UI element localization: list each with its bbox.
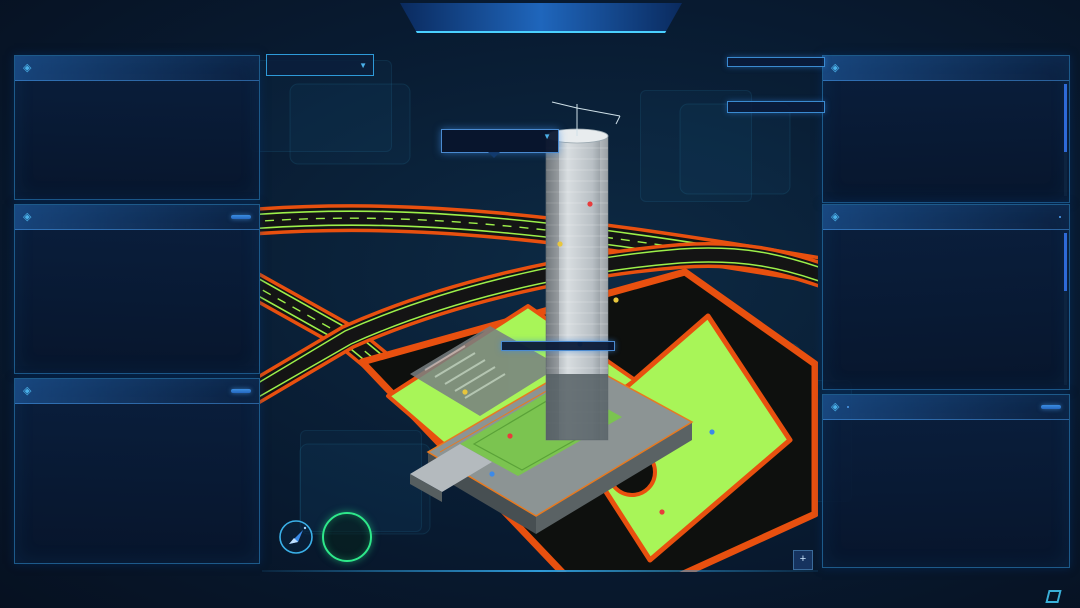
- diamond-icon: ◈: [831, 212, 839, 223]
- site-3d-map[interactable]: [260, 44, 818, 572]
- trades-panel: ◈: [822, 55, 1070, 203]
- page-title: [400, 3, 682, 33]
- attendance-chart-panel: ◈: [14, 204, 260, 374]
- detail-button[interactable]: [1041, 405, 1061, 409]
- panel-header: ◈: [15, 379, 259, 404]
- diamond-icon: ◈: [23, 386, 31, 397]
- detail-button[interactable]: [231, 389, 251, 393]
- panel-header: ◈: [15, 205, 259, 230]
- entry-exit-records-panel: ◈: [14, 55, 260, 200]
- detail-button[interactable]: [231, 215, 251, 219]
- panel-header: ◈: [15, 56, 259, 81]
- floor-tooltip: [501, 341, 615, 351]
- tower-info-box: [727, 101, 825, 113]
- logo-icon: [1045, 590, 1061, 603]
- dashboard: ◈ ◈ ◈ ▼ ▼: [0, 0, 1080, 608]
- brand-logo: [1047, 590, 1064, 603]
- today-attendance-ring: [322, 512, 372, 562]
- building-popup: ▼: [441, 129, 559, 153]
- panel-header: ◈: [823, 395, 1069, 420]
- work-days-distribution-panel: ◈: [14, 378, 260, 564]
- map-edge-glow: [262, 570, 818, 572]
- footer: [1037, 590, 1064, 603]
- scrollbar[interactable]: [1064, 84, 1067, 196]
- squad-tabs: [847, 406, 849, 408]
- panel-header: ◈: [823, 205, 1069, 230]
- fullscreen-icon[interactable]: +: [793, 550, 813, 570]
- diamond-icon: ◈: [23, 63, 31, 74]
- panel-header: ◈: [823, 56, 1069, 81]
- partners-tabs: [1059, 216, 1061, 218]
- chevron-down-icon: ▼: [359, 61, 367, 70]
- work-days-donut-chart: [15, 404, 259, 560]
- squad-panel: ◈: [822, 394, 1070, 568]
- table-header: [823, 81, 1069, 101]
- top-bar: [0, 0, 1080, 42]
- attendance-bar-line-chart: [15, 230, 259, 370]
- scrollbar[interactable]: [1064, 233, 1067, 385]
- squad-bar-line-chart: [823, 420, 1069, 564]
- compass-control[interactable]: [278, 519, 314, 555]
- partners-panel: ◈: [822, 204, 1070, 390]
- ground-info-box: [727, 57, 825, 67]
- chevron-down-icon[interactable]: ▼: [543, 132, 551, 141]
- diamond-icon: ◈: [23, 212, 31, 223]
- map-layer-select[interactable]: ▼: [266, 54, 374, 76]
- scrollbar-thumb[interactable]: [1064, 84, 1067, 152]
- diamond-icon: ◈: [831, 402, 839, 413]
- diamond-icon: ◈: [831, 63, 839, 74]
- scrollbar-thumb[interactable]: [1064, 233, 1067, 291]
